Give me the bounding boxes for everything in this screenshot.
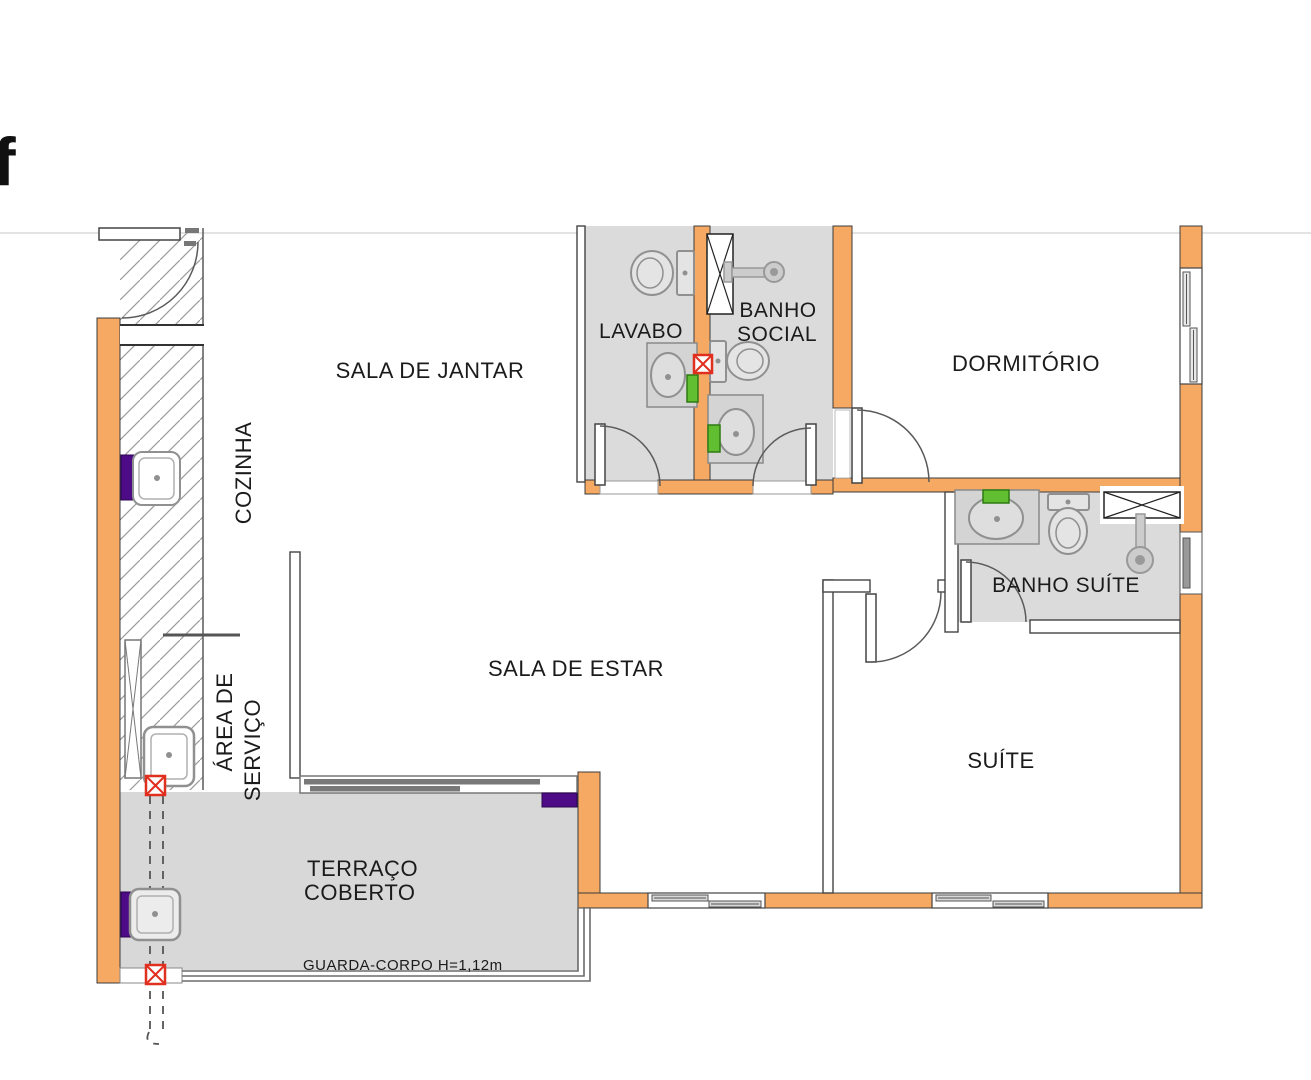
- kitchen-door-leaf: [99, 228, 180, 240]
- floor-plan-viewer: f: [0, 0, 1311, 1080]
- cozinha-label: COZINHA: [231, 422, 256, 525]
- window-icon: [1180, 532, 1202, 594]
- drain-marker-icon: [146, 965, 165, 984]
- door-sill: [753, 481, 811, 494]
- banho-suite-label: BANHO SUÍTE: [992, 574, 1140, 597]
- room-suite: SUÍTE: [866, 592, 1048, 908]
- floor-plan-drawing: COZINHA ÁREA DE SERVIÇO: [0, 0, 1311, 1080]
- toilet-icon: [1048, 494, 1089, 554]
- wall-left: [97, 318, 120, 983]
- guard-rail-label: GUARDA-CORPO H=1,12m: [303, 957, 503, 974]
- partition-lavabo-left: [577, 226, 585, 482]
- partition-estar-suite: [823, 580, 833, 893]
- sala-de-jantar-label: SALA DE JANTAR: [336, 358, 525, 383]
- suite-door-swing-icon: [871, 592, 941, 662]
- area-servico-label-2: SERVIÇO: [240, 699, 265, 801]
- wall-right-1: [1180, 226, 1202, 270]
- window-icon: [648, 893, 765, 908]
- wall-dormitorio-left: [833, 226, 852, 408]
- dormitorio-door-swing-icon: [857, 410, 929, 482]
- wall-bottom-2: [765, 893, 932, 908]
- partition-hall-stub: [823, 580, 870, 592]
- banho-suite-door-leaf: [961, 560, 971, 622]
- door-hinge: [184, 241, 196, 246]
- wall-bottom-3: [1048, 893, 1202, 908]
- wall-terraco-corner: [578, 772, 600, 893]
- lavabo-label: LAVABO: [599, 320, 683, 343]
- lavabo-door-leaf: [595, 424, 605, 485]
- dormitorio-label: DORMITÓRIO: [952, 351, 1100, 376]
- room-dormitorio: DORMITÓRIO: [835, 268, 1202, 483]
- sala-de-estar-label: SALA DE ESTAR: [488, 656, 664, 681]
- kitchen-passthrough: [120, 325, 204, 345]
- banho-social-label-1: BANHO: [739, 299, 816, 322]
- door-hinge: [185, 228, 199, 233]
- drain-marker-icon: [694, 355, 712, 373]
- suite-door-leaf: [866, 594, 876, 662]
- door-sill: [600, 481, 658, 494]
- banho-social-door-leaf: [806, 424, 816, 485]
- terraco-label-2: COBERTO: [304, 880, 416, 905]
- room-sala-de-jantar: SALA DE JANTAR: [336, 358, 525, 383]
- faucet-dot: [154, 475, 160, 481]
- suite-label: SUÍTE: [967, 748, 1034, 773]
- dormitorio-door-leaf: [852, 408, 862, 483]
- area-servico-label-1: ÁREA DE: [212, 673, 237, 772]
- terrace-sink-icon: [130, 889, 180, 940]
- wall-bottom-1: [578, 893, 648, 908]
- partition-banho-suite-bottom: [1030, 620, 1180, 633]
- accessory-marker-green: [983, 490, 1009, 503]
- banho-social-label-2: SOCIAL: [737, 323, 817, 346]
- appliance-marker-purple: [542, 793, 577, 807]
- faucet-dot: [166, 752, 172, 758]
- wall-bath-bottom-2: [658, 480, 753, 494]
- accessory-marker-green: [708, 425, 720, 452]
- toilet-icon: [710, 341, 769, 382]
- wall-right-3: [1180, 594, 1202, 893]
- toilet-icon: [631, 251, 694, 295]
- window-icon: [1180, 268, 1202, 384]
- door-opening: [835, 410, 850, 478]
- window-icon: [932, 893, 1048, 908]
- partition-estar-west: [290, 552, 300, 778]
- accessory-marker-green: [687, 375, 698, 402]
- drain-marker-icon: [146, 776, 165, 795]
- sliding-door-icon: [300, 776, 577, 793]
- terraco-label-1: TERRAÇO: [307, 856, 418, 881]
